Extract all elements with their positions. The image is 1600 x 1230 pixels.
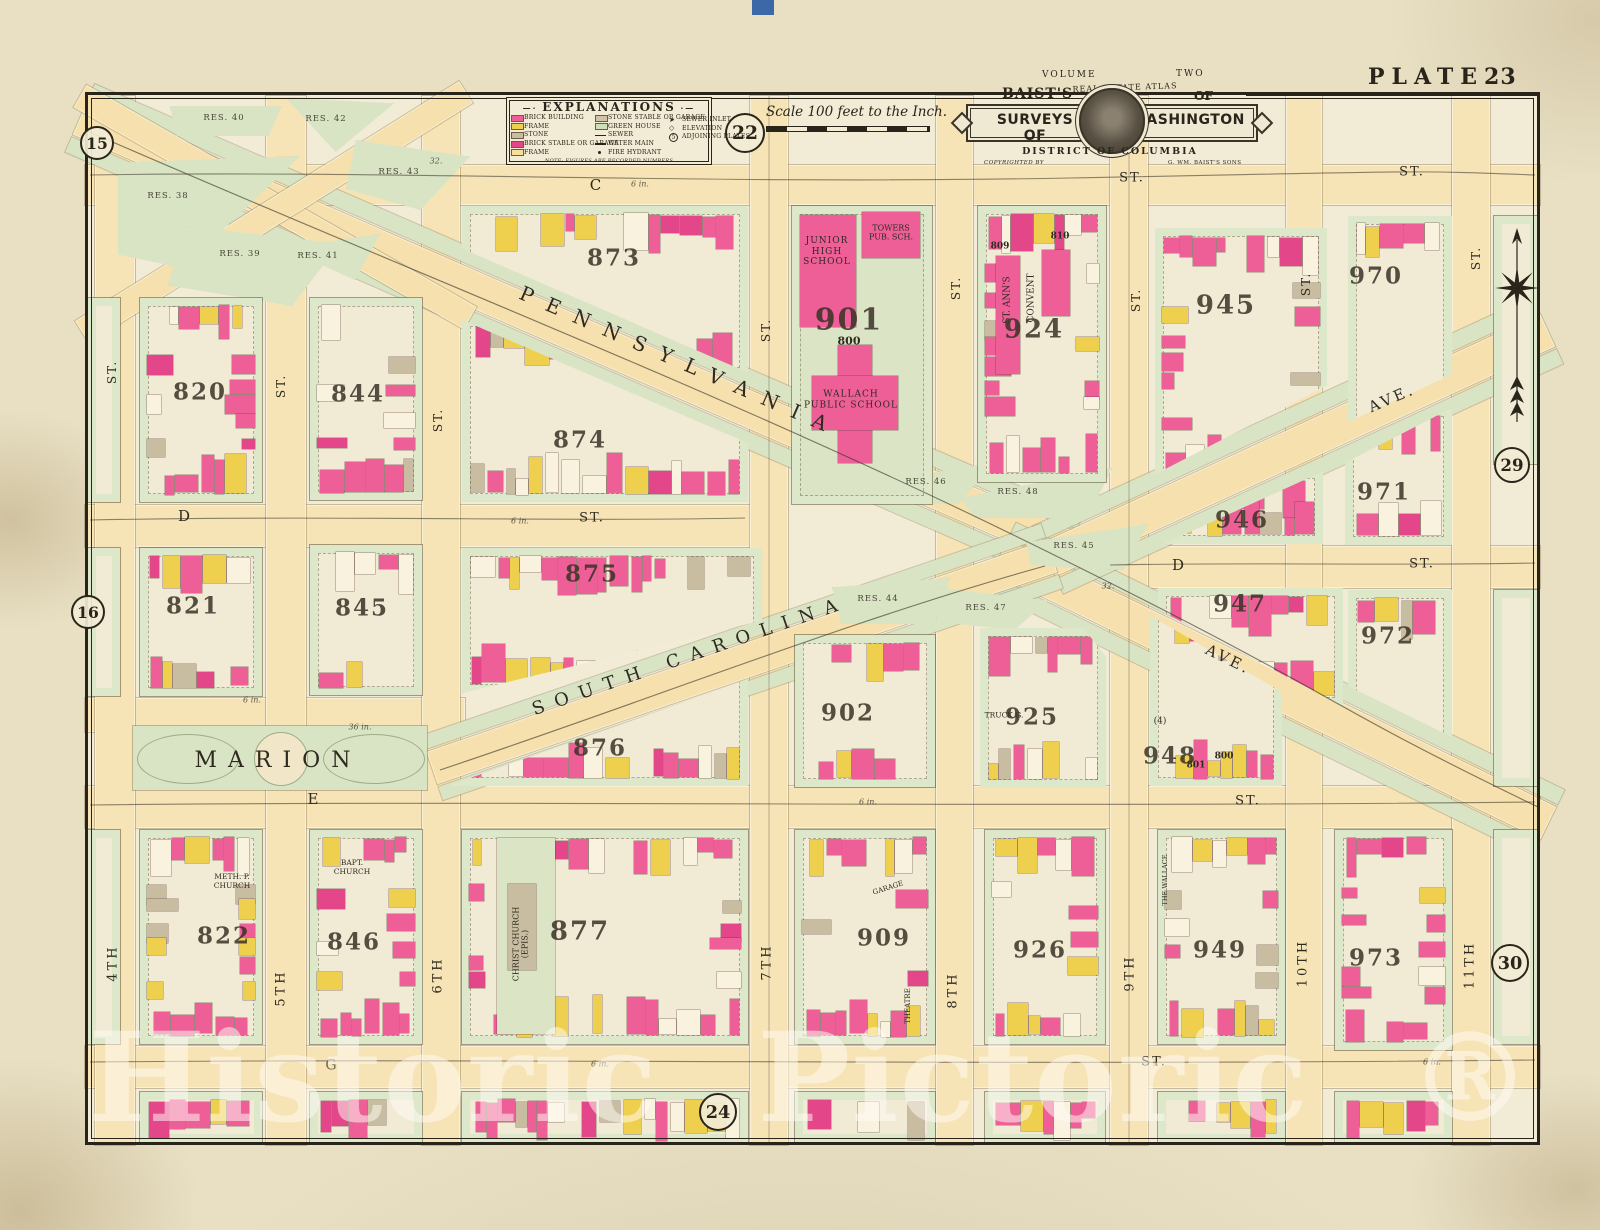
legend-box: EXPLANATIONS BRICK BUILDINGFRAMESTONEBRI…	[506, 97, 712, 165]
building	[1180, 236, 1193, 257]
legend-symbol-diamond-icon: ◇	[669, 125, 682, 132]
legend-item: STONE	[511, 131, 595, 140]
building	[1421, 501, 1441, 535]
building	[473, 840, 481, 866]
map-label: G	[325, 1058, 336, 1075]
building	[1231, 1102, 1250, 1128]
building	[1038, 838, 1055, 855]
building	[1056, 840, 1072, 870]
building	[1347, 838, 1357, 877]
building	[233, 306, 242, 328]
building	[216, 1017, 235, 1035]
map-label: ST.	[274, 374, 288, 398]
map-label: 6 in.	[511, 516, 529, 525]
building	[715, 754, 726, 777]
building	[1426, 1102, 1438, 1125]
building	[710, 938, 741, 950]
building	[1086, 758, 1097, 779]
building	[1347, 1101, 1358, 1137]
building	[643, 556, 651, 581]
building	[471, 464, 484, 492]
building	[1280, 238, 1303, 267]
building	[387, 914, 415, 931]
plate-word: PLATE	[1368, 64, 1484, 90]
block-number: 876	[573, 734, 627, 761]
building	[197, 672, 214, 687]
building	[1068, 957, 1098, 975]
block-number: 844	[331, 380, 385, 407]
building	[1303, 237, 1318, 275]
map-label: ST.	[579, 510, 605, 525]
building	[1082, 1102, 1094, 1117]
building	[729, 460, 739, 494]
building	[1366, 227, 1379, 257]
building	[661, 216, 679, 232]
building	[634, 841, 647, 874]
of-label: OF	[1194, 89, 1213, 103]
building	[546, 453, 558, 492]
building	[1358, 601, 1374, 622]
legend-symbol-dot-icon	[595, 151, 608, 154]
building	[1235, 1001, 1246, 1036]
building	[1295, 502, 1314, 534]
building	[1263, 891, 1278, 909]
building	[1162, 353, 1183, 372]
building	[170, 1100, 184, 1128]
building	[1084, 397, 1099, 408]
reservation-label: RES. 42	[305, 114, 346, 124]
building	[646, 1000, 659, 1034]
map-label: BAPT. CHURCH	[334, 859, 371, 877]
building	[487, 1103, 497, 1139]
building	[496, 217, 518, 252]
building	[227, 1101, 249, 1126]
building	[1218, 1009, 1233, 1035]
building	[684, 838, 697, 865]
building	[1246, 1006, 1257, 1036]
building	[600, 1101, 620, 1121]
building	[1043, 742, 1059, 778]
building	[200, 307, 218, 324]
legend-title: EXPLANATIONS	[511, 100, 707, 114]
legend-note: NOTE: FIGURES ARE RECORDED NUMBERS	[511, 158, 707, 164]
legend-item: STONE STABLE OR GARAGE	[595, 114, 669, 123]
building	[649, 471, 671, 495]
building	[566, 214, 575, 231]
building	[1164, 238, 1179, 253]
building	[1375, 598, 1398, 620]
building	[1382, 838, 1404, 857]
building	[1082, 215, 1097, 233]
building	[679, 759, 698, 777]
legend-item-label: FIRE HYDRANT	[608, 150, 661, 156]
building	[147, 395, 161, 414]
map-label: 800	[1215, 752, 1234, 763]
building	[1342, 888, 1357, 898]
building	[593, 995, 602, 1033]
block-number: 948	[1143, 742, 1197, 769]
building	[1307, 596, 1327, 625]
building	[211, 1100, 226, 1124]
building	[531, 658, 550, 684]
building	[1071, 1103, 1081, 1128]
map-label: 11TH	[1462, 941, 1477, 990]
city-block-partial	[1158, 1092, 1285, 1142]
block-number: 924	[1004, 315, 1064, 346]
building	[1036, 638, 1047, 654]
reservation-label: RES. 44	[857, 594, 898, 604]
map-label: ST.	[1141, 1054, 1167, 1069]
building	[332, 1101, 348, 1126]
building	[985, 397, 1015, 416]
building	[389, 357, 415, 373]
building	[875, 759, 895, 779]
block-number: 822	[197, 922, 251, 949]
plate-title: PLATE23	[1368, 64, 1517, 90]
building	[886, 839, 895, 875]
building	[163, 662, 172, 688]
building	[821, 1013, 835, 1035]
legend-item-label: ELEVATION	[682, 126, 722, 132]
map-label: CHRIST CHURCH (EPIS.)	[512, 907, 531, 982]
building	[1384, 1103, 1404, 1134]
legend-symbol-swatch-icon	[511, 141, 524, 148]
building	[672, 461, 681, 494]
building	[985, 381, 999, 396]
reservation-label: RES. 40	[203, 113, 244, 123]
building	[1407, 837, 1425, 854]
map-label: METH. P. CHURCH	[214, 873, 251, 891]
building	[884, 644, 902, 671]
map-label: ST.	[949, 276, 963, 300]
building	[320, 470, 344, 493]
building	[1059, 457, 1069, 473]
map-label: ST.	[431, 408, 445, 432]
building	[499, 558, 509, 578]
building	[908, 971, 928, 986]
legend-item-label: ADJOINING PLATES	[682, 134, 750, 140]
legend-symbol-line2-icon	[595, 143, 608, 145]
building	[1247, 751, 1257, 777]
building	[203, 555, 226, 583]
legend-item-label: SEWER	[608, 132, 633, 138]
reservation-label: RES. 43	[378, 167, 419, 177]
city-block-partial	[1494, 590, 1538, 786]
building	[1314, 672, 1334, 695]
block-number: 909	[857, 924, 911, 951]
building	[469, 972, 485, 988]
building	[1076, 337, 1099, 351]
reservation-label: RES. 47	[965, 603, 1006, 613]
building	[680, 216, 702, 235]
building	[240, 957, 255, 974]
building	[688, 557, 704, 589]
legend-columns: BRICK BUILDINGFRAMESTONEBRICK STABLE OR …	[511, 114, 707, 157]
building	[386, 385, 415, 396]
building	[1048, 637, 1057, 672]
legend-item: FIRE HYDRANT	[595, 148, 669, 157]
building	[165, 476, 174, 495]
building	[868, 1014, 877, 1036]
building	[349, 1100, 368, 1138]
title-banner: VOLUME TWO BAIST'S REAL ESTATE ATLAS OF …	[950, 58, 1270, 178]
building	[321, 1101, 331, 1132]
legend-item-label: FRAME	[524, 124, 549, 130]
reservation-label: RES. 45	[1053, 541, 1094, 551]
block-number: 926	[1013, 936, 1067, 963]
legend-item-label: GREEN HOUSE	[608, 124, 661, 130]
building	[649, 215, 660, 253]
map-label: 4TH	[105, 944, 120, 981]
legend-item: FRAME	[511, 123, 595, 132]
adjoining-plate-30: 30	[1491, 944, 1529, 982]
city-block-partial	[310, 1092, 422, 1142]
map-label: TOWERS PUB. SCH.	[869, 224, 913, 243]
city-block-821	[140, 548, 262, 696]
building	[399, 555, 413, 594]
building	[317, 889, 345, 909]
building	[1213, 841, 1226, 867]
building	[365, 999, 378, 1033]
building	[1081, 637, 1092, 663]
building	[537, 1101, 547, 1140]
building	[170, 307, 178, 323]
volume-value: TWO	[1176, 69, 1205, 79]
building	[1165, 945, 1180, 958]
building	[541, 214, 564, 246]
building	[699, 746, 711, 777]
building	[317, 438, 347, 448]
building	[147, 982, 163, 999]
building	[1357, 223, 1365, 253]
building	[1041, 438, 1056, 472]
scale-text: Scale 100 feet to the Inch.	[766, 104, 956, 120]
building	[1018, 838, 1037, 873]
building	[999, 749, 1010, 778]
legend-item-label: WATER MAIN	[608, 141, 654, 147]
building	[852, 749, 874, 779]
legend-symbol-swatch-icon	[511, 123, 524, 130]
building	[867, 644, 883, 681]
building	[395, 837, 406, 851]
building	[627, 997, 645, 1035]
city-block-partial	[795, 1092, 935, 1142]
building	[842, 840, 865, 866]
building	[186, 1102, 210, 1128]
building	[179, 307, 199, 329]
building	[656, 1102, 667, 1141]
building	[1189, 1101, 1205, 1121]
legend-item: ➤SEWER INLET	[669, 116, 709, 125]
building	[488, 471, 502, 492]
building	[232, 355, 255, 373]
building	[1425, 223, 1440, 250]
map-label: JUNIOR HIGH SCHOOL	[803, 236, 851, 268]
building	[149, 1102, 169, 1139]
building	[1217, 1103, 1230, 1122]
building	[728, 557, 750, 576]
building	[345, 462, 365, 493]
map-label: ST.	[1409, 556, 1435, 571]
building	[626, 467, 648, 494]
building	[1419, 942, 1445, 957]
building	[1380, 224, 1402, 248]
legend-symbol-line-icon	[595, 135, 608, 136]
building	[708, 472, 725, 495]
scale-bar-group: Scale 100 feet to the Inch.	[766, 104, 956, 132]
building	[904, 643, 919, 670]
map-label: 6TH	[430, 956, 445, 993]
adjoining-plate-16: 16	[71, 595, 105, 629]
building	[1346, 1010, 1363, 1042]
map-label: WALLACH PUBLIC SCHOOL	[804, 389, 898, 410]
building	[1291, 373, 1320, 385]
building	[832, 645, 850, 662]
building	[1289, 597, 1303, 613]
building	[400, 1014, 409, 1033]
city-block-partial	[88, 830, 120, 1044]
building	[682, 472, 704, 494]
building	[1268, 237, 1278, 257]
building	[482, 644, 505, 682]
building	[516, 479, 528, 495]
building	[819, 762, 832, 779]
map-label: 6 in.	[591, 1059, 609, 1068]
building	[1162, 373, 1174, 389]
block-number: 873	[587, 244, 641, 271]
legend-item-label: STONE	[524, 132, 548, 138]
building	[510, 558, 518, 588]
building	[1162, 336, 1185, 349]
building	[364, 839, 384, 860]
city-block-partial	[140, 1092, 262, 1142]
block-number: 877	[550, 917, 610, 948]
building	[1357, 514, 1378, 535]
district-label: DISTRICT OF COLUMBIA	[950, 146, 1270, 157]
building	[589, 839, 604, 873]
building	[810, 840, 824, 876]
building	[1404, 1023, 1427, 1039]
building	[698, 838, 713, 852]
building	[655, 559, 665, 578]
map-label: 32.	[430, 156, 443, 165]
map-label: 7TH	[759, 943, 774, 980]
block-number: 973	[1349, 944, 1403, 971]
building	[317, 972, 342, 990]
building	[242, 439, 255, 450]
building	[1008, 1003, 1027, 1036]
building	[583, 476, 606, 494]
map-label: D	[178, 508, 190, 526]
map-label: ST.	[1399, 164, 1425, 179]
legend-item-label: BRICK BUILDING	[524, 115, 584, 121]
building	[1182, 1009, 1203, 1037]
building	[1041, 1018, 1060, 1035]
block-number: 972	[1361, 622, 1415, 649]
building	[321, 1019, 337, 1037]
building	[1064, 1014, 1079, 1036]
building	[243, 982, 255, 1000]
map-label: THEATRE	[904, 988, 912, 1024]
building	[624, 1100, 640, 1134]
building	[607, 453, 622, 493]
building	[1071, 932, 1098, 947]
building	[989, 637, 1010, 676]
building	[727, 748, 739, 779]
city-block-partial	[985, 1092, 1105, 1142]
legend-item: BRICK STABLE OR GARAGE	[511, 140, 595, 149]
building	[171, 1015, 194, 1036]
building	[507, 469, 516, 494]
building	[173, 664, 196, 688]
building	[1387, 1022, 1403, 1041]
building	[235, 1018, 247, 1035]
scale-bar	[766, 126, 930, 132]
building	[1086, 434, 1097, 472]
building	[1259, 1020, 1275, 1035]
building	[730, 999, 739, 1035]
building	[807, 1010, 820, 1035]
legend-item: 5ADJOINING PLATES	[669, 133, 709, 142]
legend-symbol-swatch-icon	[511, 115, 524, 122]
structure	[1042, 250, 1070, 316]
building	[172, 838, 184, 860]
building	[992, 882, 1011, 897]
copyright-label: COPYRIGHTED BY	[984, 160, 1044, 166]
building	[1011, 637, 1032, 653]
building	[1407, 1101, 1424, 1132]
block-number: 846	[327, 928, 381, 955]
map-label: C	[590, 177, 604, 195]
map-label: 8TH	[945, 971, 960, 1008]
volume-label: VOLUME	[1042, 70, 1097, 80]
building	[1058, 637, 1080, 654]
building	[1404, 224, 1424, 243]
map-label: ST.	[759, 318, 773, 342]
building	[895, 840, 912, 872]
building	[213, 839, 223, 860]
building	[714, 840, 732, 858]
building	[1266, 1100, 1276, 1133]
building	[1342, 987, 1371, 998]
map-canvas: CST.ST.DST.DST.EST.GST.ST.ST.ST.ST.ST.ST…	[0, 0, 1600, 1230]
building	[1295, 307, 1320, 326]
washington-label: WASHINGTON	[1130, 112, 1246, 128]
atlas-page: CST.ST.DST.DST.EST.GST.ST.ST.ST.ST.ST.ST…	[0, 0, 1600, 1230]
building	[551, 663, 563, 685]
building	[471, 557, 495, 578]
map-label: 810	[1051, 232, 1070, 243]
building	[355, 553, 375, 574]
building	[850, 1000, 866, 1033]
building	[1028, 749, 1043, 779]
reservation-label: RES. 39	[219, 249, 260, 259]
building	[582, 1102, 596, 1137]
building	[147, 899, 178, 911]
building	[654, 749, 663, 776]
building	[366, 459, 384, 491]
building	[224, 837, 234, 871]
building	[383, 1003, 399, 1035]
building	[147, 355, 173, 374]
building	[908, 1102, 924, 1140]
map-label: 6 in.	[243, 695, 261, 704]
adjoining-plate-24: 24	[699, 1093, 737, 1131]
building	[368, 1100, 386, 1126]
legend-symbol-swatch-icon	[595, 123, 608, 130]
building	[469, 884, 484, 901]
building	[520, 556, 541, 572]
